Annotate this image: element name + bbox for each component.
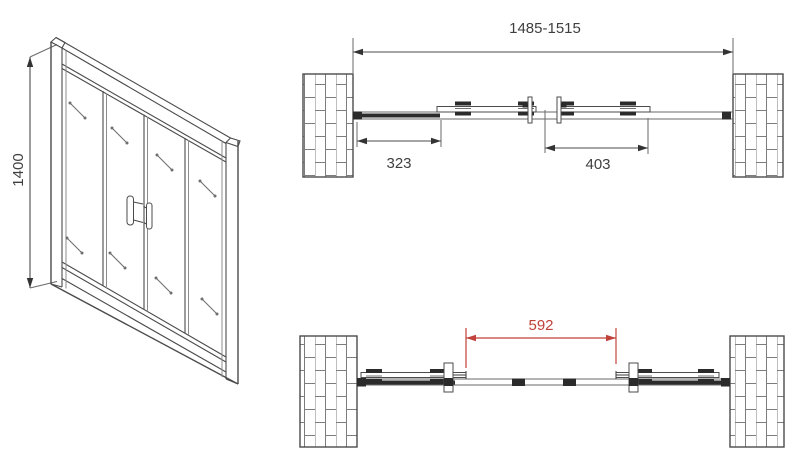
wall-left bbox=[303, 74, 353, 177]
clear-opening-label: 592 bbox=[528, 317, 553, 334]
door-track-open bbox=[357, 363, 730, 392]
clear-opening-dimension: 592 bbox=[466, 317, 616, 368]
left-offset-label: 323 bbox=[386, 155, 411, 172]
sliding-panel-right bbox=[558, 107, 650, 113]
plan-view-closed: 1485-1515 bbox=[303, 20, 783, 177]
overall-width-label: 1485-1515 bbox=[509, 20, 581, 37]
drawing-svg: 1400 bbox=[0, 0, 800, 476]
left-offset-dimension: 323 bbox=[357, 120, 441, 172]
glass-panels bbox=[66, 102, 219, 316]
sliding-panel-label: 403 bbox=[585, 156, 610, 173]
wall-left bbox=[300, 336, 357, 447]
technical-drawing-shower-door: 1400 bbox=[0, 0, 800, 476]
plan-view-open: 592 bbox=[300, 317, 784, 447]
handle-icon bbox=[144, 203, 153, 229]
door-handles bbox=[127, 196, 152, 229]
open-panel-left bbox=[361, 363, 466, 392]
sliding-panel-left bbox=[437, 107, 536, 113]
door-track-closed bbox=[353, 97, 733, 123]
height-dimension: 1400 bbox=[10, 45, 57, 289]
overall-width-dimension: 1485-1515 bbox=[353, 20, 733, 73]
open-panel-right bbox=[616, 363, 719, 392]
handle-icon bbox=[629, 363, 638, 392]
front-view: 1400 bbox=[10, 38, 240, 385]
height-dimension-label: 1400 bbox=[10, 153, 27, 186]
handle-icon bbox=[444, 363, 453, 392]
handle-icon bbox=[127, 196, 143, 225]
door-frame bbox=[51, 38, 240, 385]
wall-right bbox=[730, 336, 784, 447]
wall-right bbox=[733, 74, 783, 177]
